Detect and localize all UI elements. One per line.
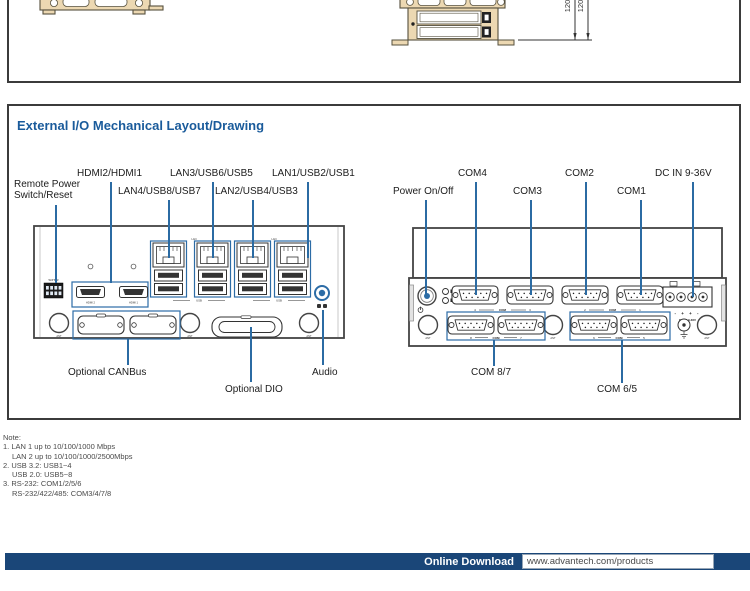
- leader-dio: [250, 327, 252, 382]
- label-lan4: LAN4/USB8/USB7: [118, 186, 201, 197]
- leader-power: [425, 200, 427, 296]
- label-com1: COM1: [617, 186, 646, 197]
- ant-tiny-label: ANT: [306, 334, 312, 338]
- note-line: USB 2.0: USB5~8: [3, 470, 133, 479]
- leader-dcin: [692, 182, 694, 297]
- usb-tiny-label-2: USB: [276, 299, 282, 303]
- label-dcin: DC IN 9-36V: [655, 168, 712, 179]
- leader-lan2: [252, 200, 254, 258]
- leader-remote-power: [55, 205, 57, 283]
- dim-label-2: 120: [576, 0, 585, 12]
- section-title: External I/O Mechanical Layout/Drawing: [17, 118, 264, 133]
- label-com65: COM 6/5: [597, 384, 637, 395]
- note-line: 1. LAN 1 up to 10/100/1000 Mbps: [3, 442, 133, 451]
- label-com87: COM 8/7: [471, 367, 511, 378]
- label-lan2: LAN2/USB4/USB3: [215, 186, 298, 197]
- leader-audio: [322, 310, 324, 365]
- leader-com87: [493, 340, 495, 366]
- label-com4: COM4: [458, 168, 487, 179]
- ant-tiny-label: ANT: [187, 334, 193, 338]
- label-com3: COM3: [513, 186, 542, 197]
- leader-lan1: [307, 182, 309, 258]
- label-com2: COM2: [565, 168, 594, 179]
- leader-hdmi: [110, 182, 112, 283]
- top-figure-drawing: 120 120: [9, 0, 739, 81]
- leader-com3: [530, 200, 532, 295]
- footer-bar: Online Download www.advantech.com/produc…: [5, 553, 750, 570]
- rear-chassis-top: [413, 228, 722, 278]
- leader-lan4: [168, 200, 170, 258]
- ant-tiny-label: ANT: [704, 336, 710, 340]
- ant-tiny-label: ANT: [56, 334, 62, 338]
- leader-com2: [585, 182, 587, 295]
- note-line: LAN 2 up to 10/100/1000/2500Mbps: [3, 452, 133, 461]
- notes-heading: Note:: [3, 433, 133, 442]
- main-figure-box: External I/O Mechanical Layout/Drawing: [7, 104, 741, 420]
- front-panel-drawing: W/P B/R HDMI 2 HDMI 1: [33, 225, 345, 342]
- remote-power-tiny-label: W/P B/R: [49, 278, 59, 282]
- usb-tiny-label-1: USB: [196, 299, 202, 303]
- label-hdmi: HDMI2/HDMI1: [77, 168, 142, 179]
- dc-polarity-marks: - + + -: [674, 311, 700, 316]
- dio-port: [212, 316, 282, 337]
- note-line: RS-232/422/485: COM3/4/7/8: [3, 489, 133, 498]
- note-line: 3. RS-232: COM1/2/5/6: [3, 479, 133, 488]
- top-figure-box: 120 120: [7, 0, 741, 83]
- leader-lan3: [212, 182, 214, 258]
- leader-com65: [621, 340, 623, 383]
- online-download-label: Online Download: [424, 556, 514, 568]
- rear-panel-drawing: 4 COM 3 2 COM 1 - + + - DC IN 9-: [408, 227, 727, 348]
- leader-com1: [640, 200, 642, 295]
- label-remote-power: Remote Power Switch/Reset: [14, 179, 80, 201]
- label-lan3: LAN3/USB6/USB5: [170, 168, 253, 179]
- notes-section: Note: 1. LAN 1 up to 10/100/1000 Mbps LA…: [3, 433, 133, 498]
- label-dio: Optional DIO: [225, 384, 283, 395]
- ant-tiny-label: ANT: [425, 336, 431, 340]
- partial-unit-middle: [392, 0, 514, 45]
- label-lan1: LAN1/USB2/USB1: [272, 168, 355, 179]
- leader-canbus: [127, 339, 129, 365]
- lan-tiny-label-2: LAN: [271, 237, 276, 241]
- label-audio: Audio: [312, 367, 338, 378]
- label-power: Power On/Off: [393, 186, 453, 197]
- hdmi2-tiny-label: HDMI 2: [86, 301, 96, 305]
- dim-label-1: 120: [563, 0, 572, 12]
- note-line: 2. USB 3.2: USB1~4: [3, 461, 133, 470]
- dimension-arrows: [573, 33, 589, 40]
- hdmi1-tiny-label: HDMI 1: [129, 301, 139, 305]
- datasheet-page: 120 120 External I/O Mechanical Layout/D…: [0, 0, 750, 591]
- download-url-box[interactable]: www.advantech.com/products: [522, 554, 714, 569]
- lan-tiny-label-1: LAN: [191, 237, 196, 241]
- label-canbus: Optional CANBus: [68, 367, 146, 378]
- ant-tiny-label: ANT: [550, 336, 556, 340]
- leader-com4: [475, 182, 477, 295]
